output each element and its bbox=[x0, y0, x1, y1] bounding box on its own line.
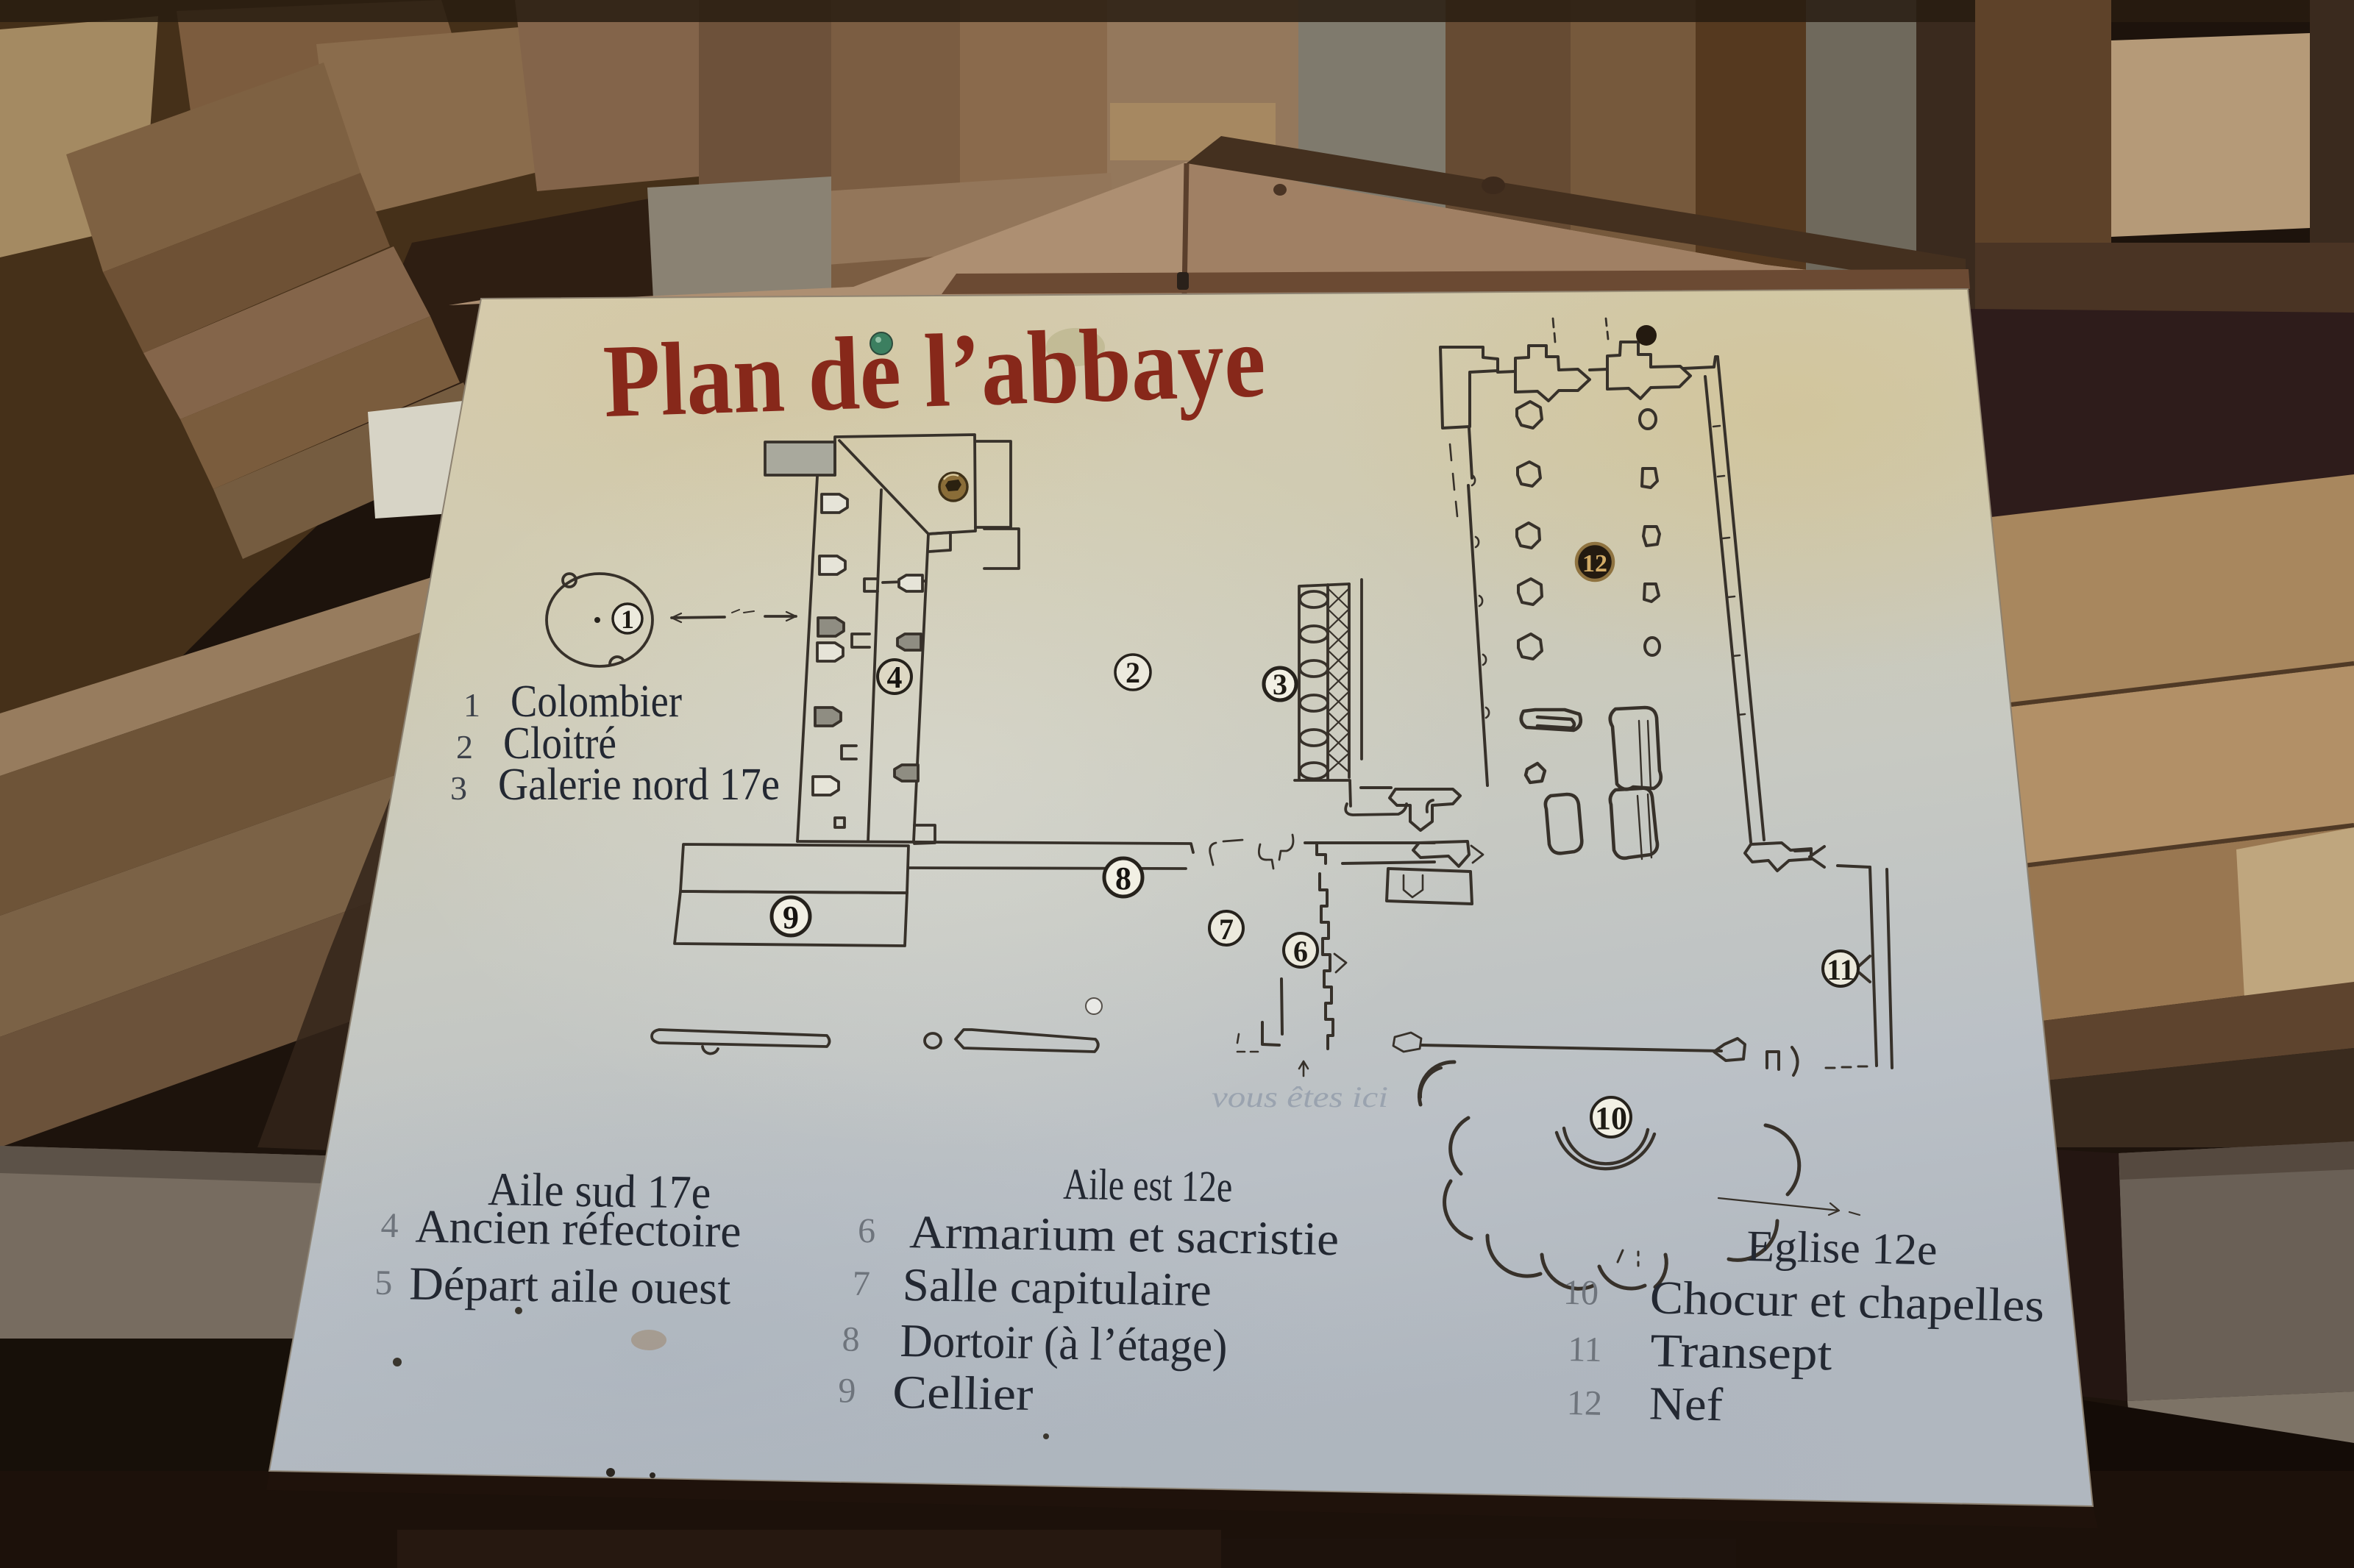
svg-text:Galerie nord 17e: Galerie nord 17e bbox=[498, 760, 780, 810]
svg-text:8: 8 bbox=[1115, 860, 1131, 897]
svg-text:Dortoir (à l’étage): Dortoir (à l’étage) bbox=[900, 1314, 1228, 1372]
svg-text:2: 2 bbox=[456, 728, 473, 766]
svg-text:9: 9 bbox=[783, 899, 799, 936]
svg-text:Plan de l’abbaye: Plan de l’abbaye bbox=[602, 302, 1267, 439]
svg-text:Aile est 12e: Aile est 12e bbox=[1063, 1160, 1233, 1211]
svg-text:8: 8 bbox=[842, 1319, 860, 1358]
svg-text:4: 4 bbox=[887, 661, 903, 695]
svg-text:Nef: Nef bbox=[1649, 1377, 1724, 1430]
svg-text:Salle capitulaire: Salle capitulaire bbox=[902, 1258, 1212, 1316]
svg-text:Eglise 12e: Eglise 12e bbox=[1746, 1222, 1938, 1274]
svg-text:6: 6 bbox=[1293, 935, 1308, 968]
svg-text:7: 7 bbox=[1219, 913, 1234, 946]
svg-text:1: 1 bbox=[621, 605, 634, 634]
svg-text:Cellier: Cellier bbox=[892, 1366, 1034, 1420]
svg-text:Armarium et sacristie: Armarium et sacristie bbox=[909, 1205, 1340, 1265]
svg-text:7: 7 bbox=[852, 1264, 870, 1303]
svg-text:6: 6 bbox=[858, 1211, 876, 1250]
svg-text:5: 5 bbox=[374, 1264, 393, 1302]
svg-text:10: 10 bbox=[1595, 1100, 1627, 1136]
svg-text:3: 3 bbox=[450, 769, 467, 807]
svg-text:vous êtes ici: vous êtes ici bbox=[1212, 1080, 1388, 1113]
svg-text:12: 12 bbox=[1566, 1383, 1602, 1423]
svg-text:2: 2 bbox=[1126, 656, 1140, 689]
svg-text:Chocur et chapelles: Chocur et chapelles bbox=[1649, 1271, 2044, 1331]
svg-text:Transept: Transept bbox=[1650, 1324, 1833, 1380]
svg-text:Départ aile ouest: Départ aile ouest bbox=[409, 1257, 731, 1314]
svg-text:11: 11 bbox=[1568, 1330, 1602, 1369]
svg-text:Ancien réfectoire: Ancien réfectoire bbox=[415, 1200, 742, 1257]
svg-text:9: 9 bbox=[838, 1371, 856, 1410]
svg-text:1: 1 bbox=[463, 686, 480, 724]
svg-text:10: 10 bbox=[1563, 1273, 1599, 1313]
svg-text:12: 12 bbox=[1582, 550, 1607, 577]
svg-text:4: 4 bbox=[380, 1206, 399, 1245]
svg-text:11: 11 bbox=[1827, 953, 1855, 986]
svg-text:3: 3 bbox=[1273, 668, 1287, 701]
